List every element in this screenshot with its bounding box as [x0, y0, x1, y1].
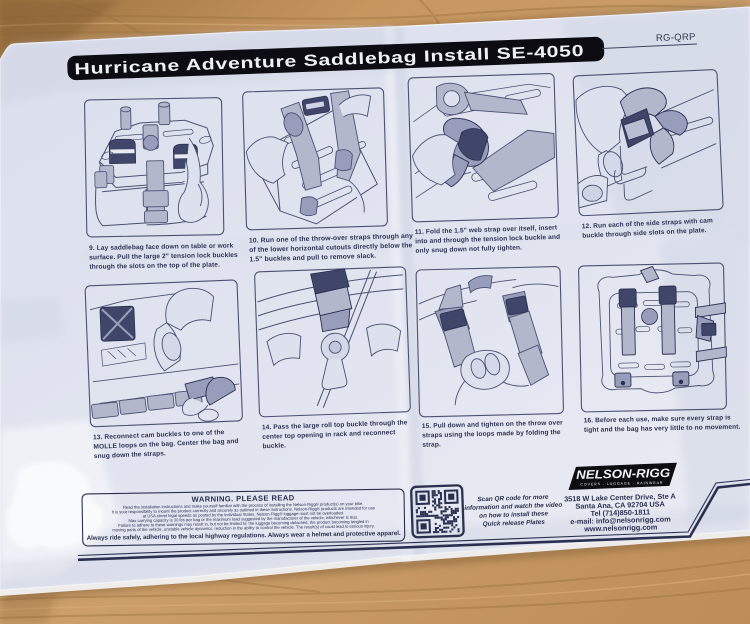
svg-text:NELSON-RIGG: NELSON-RIGG — [576, 466, 671, 482]
svg-text:Read the installation instruct: Read the installation instructions and m… — [111, 501, 375, 533]
svg-text:9. Lay saddlebag face down on: 9. Lay saddlebag face down on table or w… — [89, 242, 238, 270]
svg-text:RG-QRP: RG-QRP — [656, 32, 696, 44]
